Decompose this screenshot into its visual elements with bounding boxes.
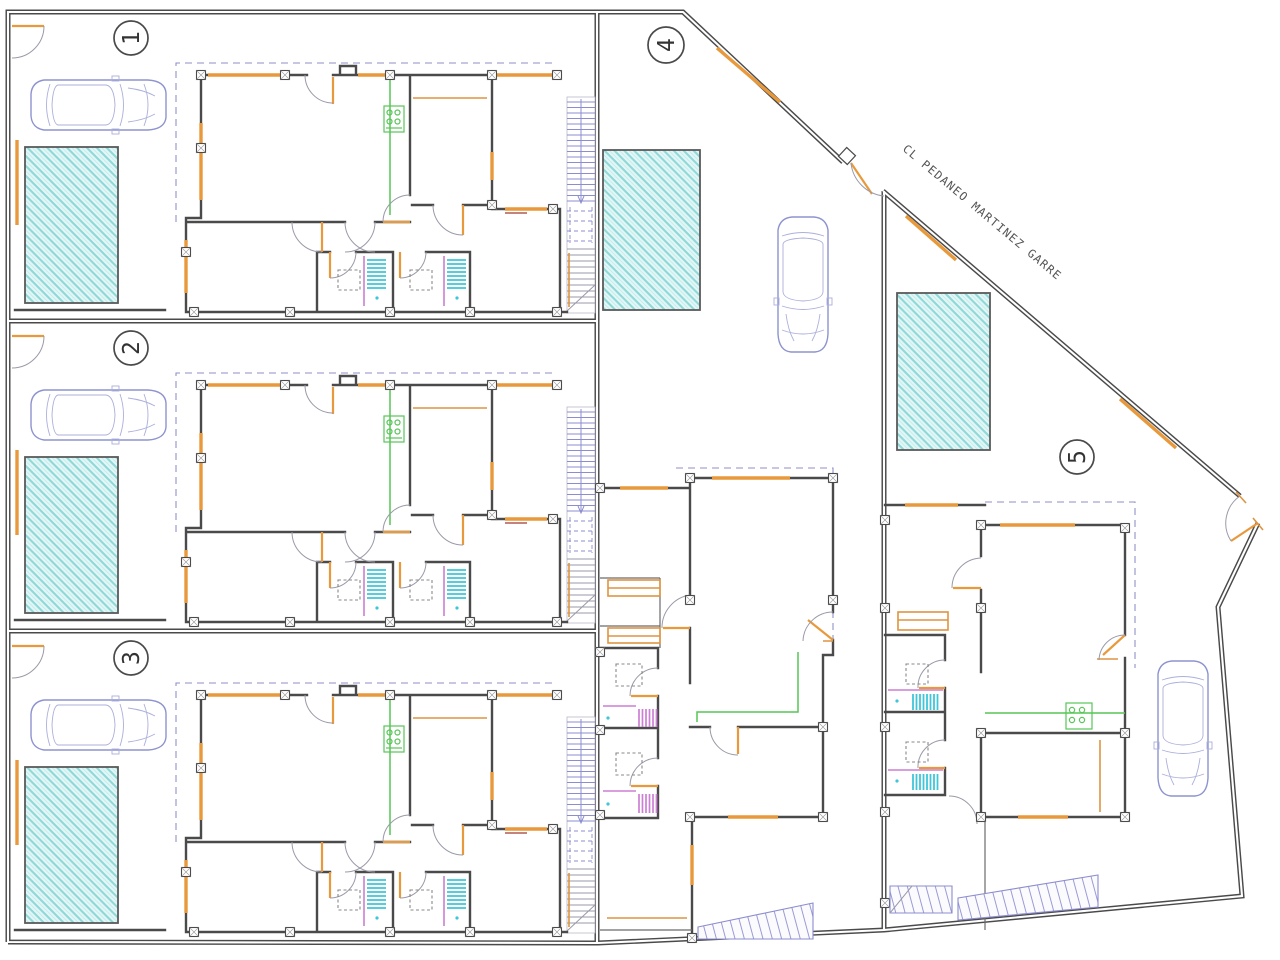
svg-text:4: 4 xyxy=(654,38,680,52)
svg-text:2: 2 xyxy=(119,341,145,355)
swimming-pool xyxy=(897,293,990,450)
unit-3-label: 3 xyxy=(119,651,145,665)
svg-text:3: 3 xyxy=(119,651,145,665)
unit-2-label: 2 xyxy=(119,341,145,355)
floor-plan-page: CL PEDANEO MARTINEZ GARRE xyxy=(0,0,1280,960)
svg-text:5: 5 xyxy=(1065,450,1091,464)
swimming-pool xyxy=(603,150,700,310)
unit-4-label: 4 xyxy=(654,38,680,52)
unit-1-label: 1 xyxy=(119,31,145,45)
floor-plan-canvas: CL PEDANEO MARTINEZ GARRE xyxy=(0,0,1280,960)
svg-text:1: 1 xyxy=(119,31,145,45)
unit-5-label: 5 xyxy=(1065,450,1091,464)
